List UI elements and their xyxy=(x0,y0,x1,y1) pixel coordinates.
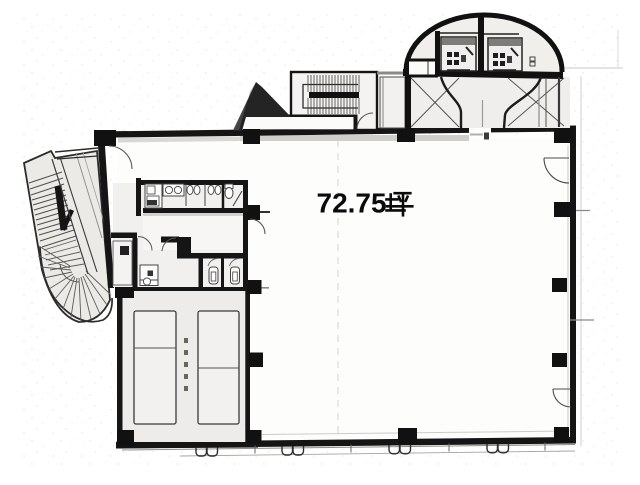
svg-text:72.75: 72.75 xyxy=(317,188,387,219)
